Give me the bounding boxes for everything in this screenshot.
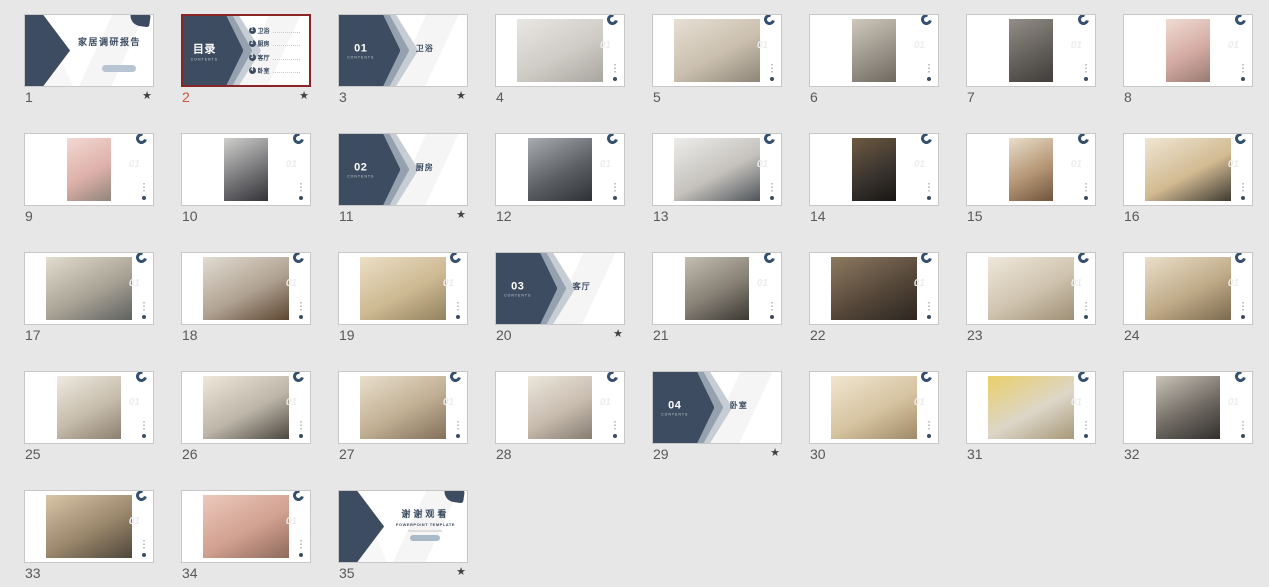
toc-item-label: 卧室 — [258, 66, 270, 75]
slide-number: 17 — [25, 328, 41, 342]
slide-meta: 15 — [966, 206, 1096, 230]
photo-placeholder — [57, 376, 121, 439]
accent-dot-icon — [1241, 77, 1245, 81]
accent-dot-icon — [1241, 196, 1245, 200]
accent-dot-icon — [299, 315, 303, 319]
slide-thumbnail[interactable]: 01 — [966, 133, 1096, 206]
slide-thumbnail[interactable]: 01 — [809, 252, 939, 325]
slide-meta: 23 — [966, 325, 1096, 349]
side-marker — [1085, 302, 1087, 311]
slide-meta: 10 — [181, 206, 311, 230]
section-watermark: 01 — [129, 516, 140, 527]
slide-cell: 0126 — [181, 371, 311, 468]
crescent-icon — [291, 490, 306, 503]
slide-number: 4 — [496, 90, 504, 104]
slide-cell: 0127 — [338, 371, 468, 468]
side-marker — [614, 183, 616, 192]
slide-number: 22 — [810, 328, 826, 342]
slide-meta: 20★ — [495, 325, 625, 349]
transition-star-icon[interactable]: ★ — [299, 90, 309, 103]
slide-thumbnail[interactable]: 01 — [1123, 371, 1253, 444]
slide-thumbnail[interactable]: 01 — [24, 371, 154, 444]
photo-placeholder — [224, 138, 268, 201]
section-watermark: 01 — [914, 397, 925, 408]
contents-label: CONTENTS — [496, 293, 540, 297]
accent-dot-icon — [142, 315, 146, 319]
section-title: 卫浴 — [416, 43, 434, 54]
side-marker — [928, 421, 930, 430]
photo-placeholder — [46, 257, 132, 320]
slide-number: 1 — [25, 90, 33, 104]
slide-meta: 19 — [338, 325, 468, 349]
side-marker — [928, 302, 930, 311]
crescent-icon — [134, 133, 149, 146]
section-watermark: 01 — [757, 40, 768, 51]
toc-item-label: 客厅 — [258, 53, 270, 62]
side-marker — [300, 183, 302, 192]
slide-meta: 28 — [495, 444, 625, 468]
chevron-text: 04CONTENTS — [653, 399, 697, 417]
slide-number: 14 — [810, 209, 826, 223]
toc-leader-line — [273, 32, 301, 33]
side-marker — [457, 421, 459, 430]
slide-cell: 017 — [966, 14, 1096, 111]
slide-meta: 24 — [1123, 325, 1253, 349]
slide-number: 28 — [496, 447, 512, 461]
slide-thumbnail[interactable]: 01 — [1123, 133, 1253, 206]
accent-dot-icon — [1084, 77, 1088, 81]
crescent-icon — [762, 14, 777, 27]
crescent-icon — [762, 252, 777, 265]
crescent-icon — [134, 490, 149, 503]
slide-thumbnail[interactable]: 家居调研报告 — [24, 14, 154, 87]
slide-meta: 35★ — [338, 563, 468, 587]
photo-placeholder — [852, 138, 896, 201]
slide-number: 18 — [182, 328, 198, 342]
slide-meta: 14 — [809, 206, 939, 230]
section-watermark: 01 — [757, 278, 768, 289]
slide-cell: 0115 — [966, 133, 1096, 230]
slide-number: 12 — [496, 209, 512, 223]
slide-cell: 04CONTENTS卧室29★ — [652, 371, 782, 468]
slide-thumbnail[interactable]: 01 — [338, 252, 468, 325]
slide-cell: 01CONTENTS卫浴3★ — [338, 14, 468, 111]
slide-number: 13 — [653, 209, 669, 223]
crescent-icon — [291, 133, 306, 146]
crescent-icon — [291, 371, 306, 384]
slide-thumbnail[interactable]: 01 — [809, 14, 939, 87]
crescent-icon — [448, 371, 463, 384]
crescent-icon — [919, 14, 934, 27]
slide-number: 35 — [339, 566, 355, 580]
side-marker — [457, 302, 459, 311]
accent-dot-icon — [613, 77, 617, 81]
accent-dot-icon — [299, 434, 303, 438]
crescent-icon — [919, 133, 934, 146]
side-marker — [300, 421, 302, 430]
section-watermark: 01 — [1228, 278, 1239, 289]
side-marker — [143, 421, 145, 430]
section-watermark: 01 — [914, 159, 925, 170]
photo-placeholder — [1009, 19, 1053, 82]
slide-meta: 5 — [652, 87, 782, 111]
accent-dot-icon — [299, 196, 303, 200]
slide-meta: 8 — [1123, 87, 1253, 111]
slide-meta: 7 — [966, 87, 1096, 111]
slide-cell: 0110 — [181, 133, 311, 230]
accent-dot-icon — [613, 196, 617, 200]
slide-meta: 6 — [809, 87, 939, 111]
slide-number: 6 — [810, 90, 818, 104]
slide-number: 16 — [1124, 209, 1140, 223]
slide-thumbnail[interactable]: 01 — [495, 133, 625, 206]
slide-cell: 0130 — [809, 371, 939, 468]
section-watermark: 01 — [914, 40, 925, 51]
chevron-text: 02CONTENTS — [339, 161, 383, 179]
chevron-text: 01CONTENTS — [339, 42, 383, 60]
section-number: 01 — [339, 42, 383, 54]
slide-number: 33 — [25, 566, 41, 580]
section-watermark: 01 — [1071, 159, 1082, 170]
photo-placeholder — [1156, 376, 1220, 439]
slide-meta: 26 — [181, 444, 311, 468]
slide-thumbnail[interactable]: 04CONTENTS卧室 — [652, 371, 782, 444]
crescent-icon — [1233, 14, 1248, 27]
slide-number: 34 — [182, 566, 198, 580]
slide-number: 3 — [339, 90, 347, 104]
slide-meta: 9 — [24, 206, 154, 230]
chevron-arrow: 04CONTENTS — [653, 372, 781, 443]
section-watermark: 01 — [914, 278, 925, 289]
transition-star-icon[interactable]: ★ — [142, 90, 152, 103]
slide-number: 5 — [653, 90, 661, 104]
slide-cell: 0133 — [24, 490, 154, 587]
closing-text-block: 谢谢观看POWERPOINT TEMPLATE — [390, 507, 460, 541]
photo-placeholder — [203, 376, 289, 439]
slide-thumbnail[interactable]: 01 — [809, 133, 939, 206]
crescent-icon — [1076, 252, 1091, 265]
toc-item-label: 厨房 — [258, 39, 270, 48]
accent-dot-icon — [927, 196, 931, 200]
accent-dot-icon — [613, 434, 617, 438]
toc-item: 2厨房 — [249, 39, 301, 48]
slide-number: 10 — [182, 209, 198, 223]
side-marker — [143, 183, 145, 192]
slide-number: 30 — [810, 447, 826, 461]
toc-item-list: 1卫浴2厨房3客厅4卧室 — [249, 26, 301, 74]
photo-placeholder — [203, 257, 289, 320]
accent-dot-icon — [770, 196, 774, 200]
slide-thumbnail[interactable]: 01 — [495, 371, 625, 444]
slide-thumbnail[interactable]: 01 — [652, 133, 782, 206]
section-watermark: 01 — [1228, 397, 1239, 408]
section-watermark: 01 — [1228, 40, 1239, 51]
section-watermark: 01 — [286, 397, 297, 408]
toc-item: 4卧室 — [249, 66, 301, 75]
slide-thumbnail[interactable]: 01 — [181, 490, 311, 563]
photo-placeholder — [831, 376, 917, 439]
closing-title: 谢谢观看 — [390, 507, 460, 520]
crescent-icon — [134, 252, 149, 265]
accent-dot-icon — [142, 553, 146, 557]
toc-heading: 目录 — [183, 40, 226, 56]
slide-thumbnail[interactable]: 01 — [1123, 14, 1253, 87]
contents-label: CONTENTS — [183, 57, 226, 61]
slide-cell: 0134 — [181, 490, 311, 587]
closing-pill — [410, 535, 440, 541]
slide-cell: 02CONTENTS厨房11★ — [338, 133, 468, 230]
toc-leader-line — [273, 72, 301, 73]
slide-cell: 03CONTENTS客厅20★ — [495, 252, 625, 349]
toc-item: 3客厅 — [249, 53, 301, 62]
slide-cell: 0131 — [966, 371, 1096, 468]
crescent-icon — [605, 371, 620, 384]
slide-cell: 0125 — [24, 371, 154, 468]
slide-thumbnail[interactable]: 01 — [181, 371, 311, 444]
crescent-icon — [1233, 133, 1248, 146]
slide-thumbnail[interactable]: 01 — [495, 14, 625, 87]
photo-placeholder — [360, 376, 446, 439]
photo-placeholder — [674, 19, 760, 82]
section-watermark: 01 — [443, 278, 454, 289]
side-marker — [1242, 64, 1244, 73]
slide-thumbnail[interactable]: 03CONTENTS客厅 — [495, 252, 625, 325]
accent-dot-icon — [927, 434, 931, 438]
photo-placeholder — [988, 376, 1074, 439]
side-marker — [771, 183, 773, 192]
side-marker — [1242, 183, 1244, 192]
slide-meta: 22 — [809, 325, 939, 349]
slide-thumbnail[interactable]: 01 — [24, 490, 154, 563]
accent-dot-icon — [456, 434, 460, 438]
section-number: 03 — [496, 280, 540, 292]
cta-pill — [102, 65, 136, 72]
section-number: 02 — [339, 161, 383, 173]
slide-thumbnail[interactable]: 01 — [1123, 252, 1253, 325]
slide-meta: 31 — [966, 444, 1096, 468]
slide-thumbnail[interactable]: 01 — [966, 14, 1096, 87]
slide-thumbnail[interactable]: 01CONTENTS卫浴 — [338, 14, 468, 87]
section-title: 卧室 — [730, 400, 748, 411]
slide-thumbnail[interactable]: 01 — [181, 252, 311, 325]
slide-number: 19 — [339, 328, 355, 342]
accent-dot-icon — [1084, 434, 1088, 438]
slide-cell: 0113 — [652, 133, 782, 230]
side-marker — [1242, 302, 1244, 311]
accent-dot-icon — [1241, 434, 1245, 438]
slide-cell: 014 — [495, 14, 625, 111]
slide-meta: 29★ — [652, 444, 782, 468]
chevron-arrow: 02CONTENTS — [339, 134, 467, 205]
slide-thumbnail[interactable]: 谢谢观看POWERPOINT TEMPLATE — [338, 490, 468, 563]
chevron-text: 目录CONTENTS — [183, 40, 226, 62]
slide-thumbnail[interactable]: 01 — [966, 252, 1096, 325]
transition-star-icon[interactable]: ★ — [613, 328, 623, 341]
slide-cell: 0117 — [24, 252, 154, 349]
section-watermark: 01 — [443, 397, 454, 408]
photo-placeholder — [1166, 19, 1210, 82]
side-marker — [928, 64, 930, 73]
crescent-icon — [1076, 14, 1091, 27]
side-marker — [771, 64, 773, 73]
slide-meta: 32 — [1123, 444, 1253, 468]
slide-number: 11 — [339, 209, 354, 223]
slide-number: 2 — [182, 90, 190, 104]
section-watermark: 01 — [1228, 159, 1239, 170]
slide-number: 20 — [496, 328, 512, 342]
photo-placeholder — [517, 19, 603, 82]
slide-meta: 17 — [24, 325, 154, 349]
toc-leader-line — [273, 45, 301, 46]
slide-cell: 018 — [1123, 14, 1253, 111]
section-watermark: 01 — [600, 40, 611, 51]
accent-dot-icon — [1241, 315, 1245, 319]
slide-thumbnail[interactable]: 01 — [24, 252, 154, 325]
photo-placeholder — [1145, 138, 1231, 201]
section-watermark: 01 — [1071, 278, 1082, 289]
slide-cell: 0114 — [809, 133, 939, 230]
transition-star-icon[interactable]: ★ — [770, 447, 780, 460]
crescent-icon — [448, 252, 463, 265]
slide-cell: 目录CONTENTS1卫浴2厨房3客厅4卧室2★ — [181, 14, 311, 111]
section-title: 客厅 — [573, 281, 591, 292]
contents-label: CONTENTS — [339, 55, 383, 59]
chevron-text: 03CONTENTS — [496, 280, 540, 298]
slide-number: 25 — [25, 447, 41, 461]
side-marker — [928, 183, 930, 192]
side-marker — [1085, 64, 1087, 73]
crescent-icon — [291, 252, 306, 265]
transition-star-icon[interactable]: ★ — [456, 209, 466, 222]
slide-number: 23 — [967, 328, 983, 342]
slide-thumbnail[interactable]: 01 — [338, 371, 468, 444]
slide-cell: 016 — [809, 14, 939, 111]
slide-meta: 12 — [495, 206, 625, 230]
crescent-icon — [762, 133, 777, 146]
slide-meta: 13 — [652, 206, 782, 230]
toc-item-number: 1 — [249, 27, 256, 34]
accent-dot-icon — [1084, 315, 1088, 319]
slide-cell: 0119 — [338, 252, 468, 349]
side-marker — [143, 540, 145, 549]
accent-dot-icon — [927, 77, 931, 81]
slide-meta: 18 — [181, 325, 311, 349]
section-watermark: 01 — [286, 516, 297, 527]
side-marker — [771, 302, 773, 311]
slide-number: 26 — [182, 447, 198, 461]
section-watermark: 01 — [286, 159, 297, 170]
side-marker — [143, 302, 145, 311]
slide-cell: 0128 — [495, 371, 625, 468]
slide-number: 7 — [967, 90, 975, 104]
photo-placeholder — [831, 257, 917, 320]
side-marker — [300, 302, 302, 311]
slide-cell: 0132 — [1123, 371, 1253, 468]
slide-thumbnail[interactable]: 01 — [181, 133, 311, 206]
contents-label: CONTENTS — [339, 174, 383, 178]
photo-placeholder — [852, 19, 896, 82]
side-marker — [614, 421, 616, 430]
section-watermark: 01 — [600, 159, 611, 170]
section-number: 04 — [653, 399, 697, 411]
slide-meta: 16 — [1123, 206, 1253, 230]
slide-thumbnail[interactable]: 01 — [652, 14, 782, 87]
slide-meta: 25 — [24, 444, 154, 468]
slide-cell: 0118 — [181, 252, 311, 349]
photo-placeholder — [1009, 138, 1053, 201]
section-watermark: 01 — [1071, 40, 1082, 51]
chevron-arrow: 01CONTENTS — [339, 15, 467, 86]
slide-cell: 019 — [24, 133, 154, 230]
slide-number: 15 — [967, 209, 983, 223]
slide-thumbnail[interactable]: 01 — [809, 371, 939, 444]
slide-cell: 0121 — [652, 252, 782, 349]
toc-item-number: 2 — [249, 40, 256, 47]
crescent-icon — [1233, 252, 1248, 265]
slide-meta: 34 — [181, 563, 311, 587]
side-marker — [614, 64, 616, 73]
side-marker — [300, 540, 302, 549]
photo-placeholder — [1145, 257, 1231, 320]
slide-meta: 11★ — [338, 206, 468, 230]
toc-item: 1卫浴 — [249, 26, 301, 35]
slide-cell: 0112 — [495, 133, 625, 230]
crescent-icon — [1076, 133, 1091, 146]
section-watermark: 01 — [129, 278, 140, 289]
slide-cell: 0123 — [966, 252, 1096, 349]
section-watermark: 01 — [757, 159, 768, 170]
section-watermark: 01 — [286, 278, 297, 289]
crescent-icon — [919, 371, 934, 384]
toc-item-number: 3 — [249, 54, 256, 61]
slide-number: 21 — [653, 328, 669, 342]
accent-dot-icon — [299, 553, 303, 557]
crescent-icon — [134, 371, 149, 384]
photo-placeholder — [988, 257, 1074, 320]
slide-sorter-grid: 家居调研报告1★目录CONTENTS1卫浴2厨房3客厅4卧室2★01CONTEN… — [0, 0, 1269, 587]
slide-meta: 4 — [495, 87, 625, 111]
slide-number: 8 — [1124, 90, 1132, 104]
crescent-icon — [1233, 371, 1248, 384]
slide-number: 27 — [339, 447, 355, 461]
slide-thumbnail[interactable]: 目录CONTENTS1卫浴2厨房3客厅4卧室 — [181, 14, 311, 87]
section-watermark: 01 — [600, 397, 611, 408]
photo-placeholder — [674, 138, 760, 201]
transition-star-icon[interactable]: ★ — [456, 90, 466, 103]
slide-cell: 0116 — [1123, 133, 1253, 230]
slide-cell: 谢谢观看POWERPOINT TEMPLATE35★ — [338, 490, 468, 587]
slide-meta: 3★ — [338, 87, 468, 111]
slide-thumbnail[interactable]: 01 — [966, 371, 1096, 444]
transition-star-icon[interactable]: ★ — [456, 566, 466, 579]
closing-subtitle: POWERPOINT TEMPLATE — [390, 522, 460, 527]
crescent-icon — [605, 14, 620, 27]
slide-thumbnail[interactable]: 01 — [652, 252, 782, 325]
photo-placeholder — [528, 376, 592, 439]
accent-dot-icon — [142, 434, 146, 438]
accent-dot-icon — [927, 315, 931, 319]
slide-cell: 015 — [652, 14, 782, 111]
presentation-title: 家居调研报告 — [71, 35, 148, 48]
slide-thumbnail[interactable]: 02CONTENTS厨房 — [338, 133, 468, 206]
slide-thumbnail[interactable]: 01 — [24, 133, 154, 206]
toc-leader-line — [273, 59, 301, 60]
section-title: 厨房 — [416, 162, 434, 173]
photo-placeholder — [528, 138, 592, 201]
toc-item-number: 4 — [249, 67, 256, 74]
slide-meta: 30 — [809, 444, 939, 468]
slide-meta: 2★ — [181, 87, 311, 111]
